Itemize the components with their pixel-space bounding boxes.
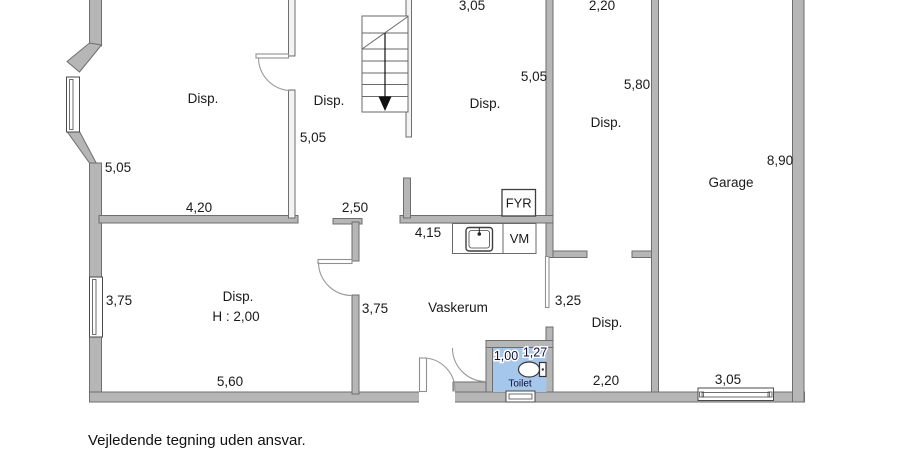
room-label-toilet: Toilet — [508, 379, 532, 390]
dim-label-toilet: 1,27 — [523, 346, 547, 360]
dim-label: 5,60 — [217, 374, 243, 389]
door-opening — [419, 392, 455, 404]
wall-segment — [352, 295, 359, 394]
dim-label: 5,05 — [300, 130, 326, 145]
wall-segment-toilet — [486, 348, 493, 393]
room-label-upper-mid: Disp. — [470, 96, 501, 111]
dim-label: 5,05 — [521, 69, 547, 84]
dim-label: 2,20 — [589, 0, 615, 13]
door-leaf — [546, 257, 550, 308]
floor-plan-page: 3,05 2,20 Disp. 5,05 4,20 Disp. 5,05 2,5… — [0, 0, 905, 460]
ceiling-height-label: H : 2,00 — [212, 309, 259, 324]
dim-label: 5,80 — [624, 77, 650, 92]
room-label-upper-left: Disp. — [188, 91, 219, 106]
dim-label: 5,05 — [105, 160, 131, 175]
disclaimer-text: Vejledende tegning uden ansvar. — [88, 432, 306, 449]
wall-stub — [632, 251, 652, 258]
dim-label: 3,75 — [106, 293, 132, 308]
room-label-lower-left: Disp. — [223, 289, 254, 304]
door-leaf — [256, 54, 289, 58]
door-swing-arc-toilet — [453, 348, 487, 382]
wall-segment-right — [793, 0, 805, 402]
window-garage — [698, 388, 774, 401]
door-swing-arc — [319, 262, 353, 296]
window — [506, 391, 535, 402]
dim-label: 3,75 — [362, 301, 388, 316]
wall-stub — [553, 251, 587, 258]
dim-label-toilet: 1,00 — [494, 349, 518, 363]
wall-segment — [289, 90, 296, 218]
wall-segment — [90, 337, 102, 393]
dim-label: 4,15 — [415, 225, 441, 240]
dim-label: 2,50 — [342, 200, 368, 215]
door-swing-arc — [259, 58, 292, 91]
room-label-stair-hall: Disp. — [314, 93, 345, 108]
room-label-upper-right: Disp. — [591, 115, 622, 130]
wall-segment — [99, 216, 298, 224]
wall-stub — [453, 382, 486, 392]
wall-segment — [546, 327, 553, 392]
dim-label: 3,25 — [555, 293, 581, 308]
room-label-lower-right: Disp. — [592, 315, 623, 330]
dim-label: 3,05 — [715, 372, 741, 387]
dim-label: 3,05 — [459, 0, 485, 13]
toilet-bowl — [519, 362, 540, 377]
room-label-garage: Garage — [708, 175, 753, 190]
wall-segment — [289, 0, 296, 56]
fixture-label-washer: VM — [510, 231, 530, 246]
floor-plan-canvas: 3,05 2,20 Disp. 5,05 4,20 Disp. 5,05 2,5… — [0, 0, 905, 460]
dim-label: 8,90 — [767, 153, 793, 168]
door-swing-arc — [423, 358, 455, 391]
room-label-laundry: Vaskerum — [428, 300, 488, 315]
dim-label: 2,20 — [593, 373, 619, 388]
dim-label: 4,20 — [186, 200, 212, 215]
wall-stub — [404, 178, 411, 218]
wall-segment-angled — [67, 43, 102, 72]
wall-segment-garage — [652, 0, 659, 392]
door-leaf — [420, 358, 427, 392]
toilet-flush-dot — [542, 368, 544, 370]
door-leaf — [318, 260, 352, 264]
wall-segment — [90, 0, 102, 46]
fixture-label-boiler: FYR — [506, 196, 532, 211]
wall-segment — [352, 222, 359, 261]
faucet-dot — [478, 232, 482, 236]
